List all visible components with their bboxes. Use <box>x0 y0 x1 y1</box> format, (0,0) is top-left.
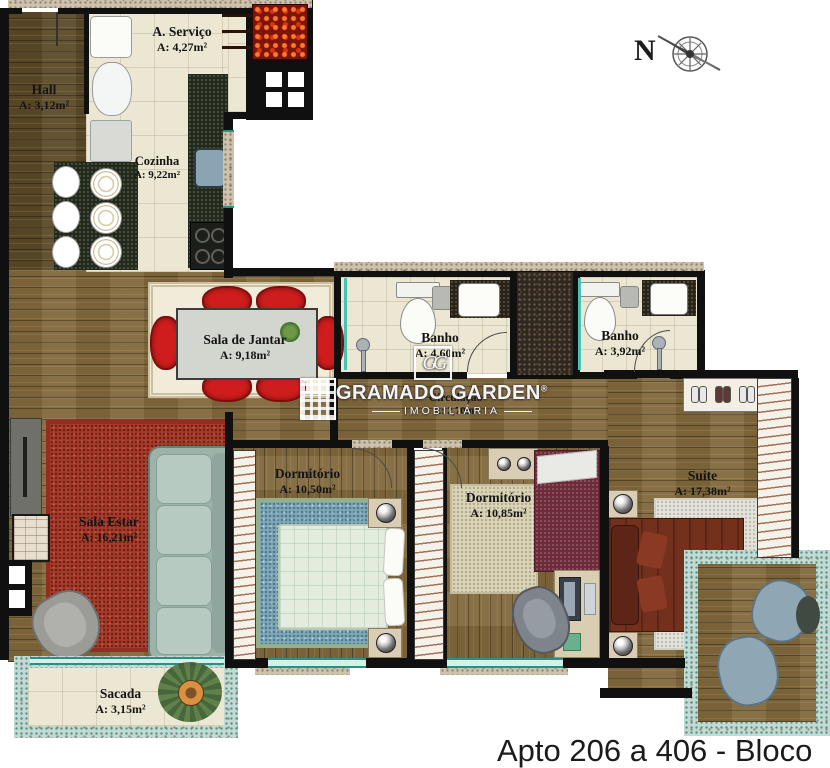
bar-stool <box>52 201 80 233</box>
label-dormitorio1: Dormitório A: 10,50m² <box>240 466 375 496</box>
sofa <box>148 446 236 662</box>
sink-basin-icon <box>458 283 500 317</box>
laundry-sink <box>90 16 132 58</box>
label-sala-jantar: Sala de Jantar A: 9,18m² <box>176 332 314 362</box>
side-table <box>796 596 820 634</box>
label-sacada: Sacada A: 3,15m² <box>58 686 183 716</box>
label-sala-estar: Sala Estar A: 16,21m² <box>44 514 174 544</box>
pillow <box>611 525 639 625</box>
nightstand <box>606 632 638 660</box>
toilet-icon <box>580 282 620 297</box>
keyboard-icon <box>584 583 596 615</box>
tv-cabinet <box>10 418 42 516</box>
grill-window <box>258 64 312 114</box>
compass-north-label: N <box>634 34 656 67</box>
label-banho2: Banho A: 3,92m² <box>570 328 670 358</box>
shower-glass <box>344 278 347 370</box>
plan-caption: Apto 206 a 406 - Bloco A <box>497 733 830 768</box>
pillow <box>383 528 405 577</box>
label-servico: A. Serviço A: 4,27m² <box>130 24 234 54</box>
stove <box>190 222 228 270</box>
door-threshold <box>423 440 462 448</box>
window-sill <box>440 668 568 675</box>
label-circulacao: Circulação A: 2,70m² <box>388 392 523 418</box>
service-duct <box>517 272 573 375</box>
sink-basin-icon <box>650 283 688 315</box>
pillow <box>537 450 597 484</box>
pillow <box>383 578 405 627</box>
dresser <box>488 448 538 480</box>
bbq-grill-icon <box>252 4 308 60</box>
laundry-tub <box>92 62 132 116</box>
shoe-shelf <box>683 378 759 412</box>
nightstand <box>368 628 402 658</box>
exterior-finish <box>334 262 704 271</box>
label-banho1: Banho A: 4,60m² <box>390 330 490 360</box>
decorative-plate <box>90 202 122 234</box>
nightstand <box>368 498 402 528</box>
label-dormitorio2: Dormitório A: 10,85m² <box>436 490 561 520</box>
soap-dish <box>620 286 639 308</box>
shower-stem-icon <box>361 350 366 372</box>
bar-stool <box>52 236 80 268</box>
door-threshold <box>352 440 392 448</box>
compass-icon: N <box>612 12 732 82</box>
soap-dish <box>432 286 452 310</box>
bed-double <box>278 524 388 630</box>
skewer-icon <box>222 14 252 17</box>
tv-icon <box>23 437 27 497</box>
bedroom1-window <box>268 658 366 668</box>
bar-stool <box>52 166 80 198</box>
nightstand <box>606 490 638 518</box>
kitchen-window <box>223 130 234 208</box>
label-hall: Hall A: 3,12m² <box>2 82 86 112</box>
decorative-plate <box>90 236 122 268</box>
window-sill <box>255 668 350 675</box>
floor-plan: Hall A: 3,12m² A. Serviço A: 4,27m² Cozi… <box>0 0 830 768</box>
entry-door-leaf <box>56 12 58 46</box>
label-cozinha: Cozinha A: 9,22m² <box>114 154 200 182</box>
label-suite: Suite A: 17,38m² <box>640 468 765 498</box>
bedroom2-window <box>447 658 563 668</box>
